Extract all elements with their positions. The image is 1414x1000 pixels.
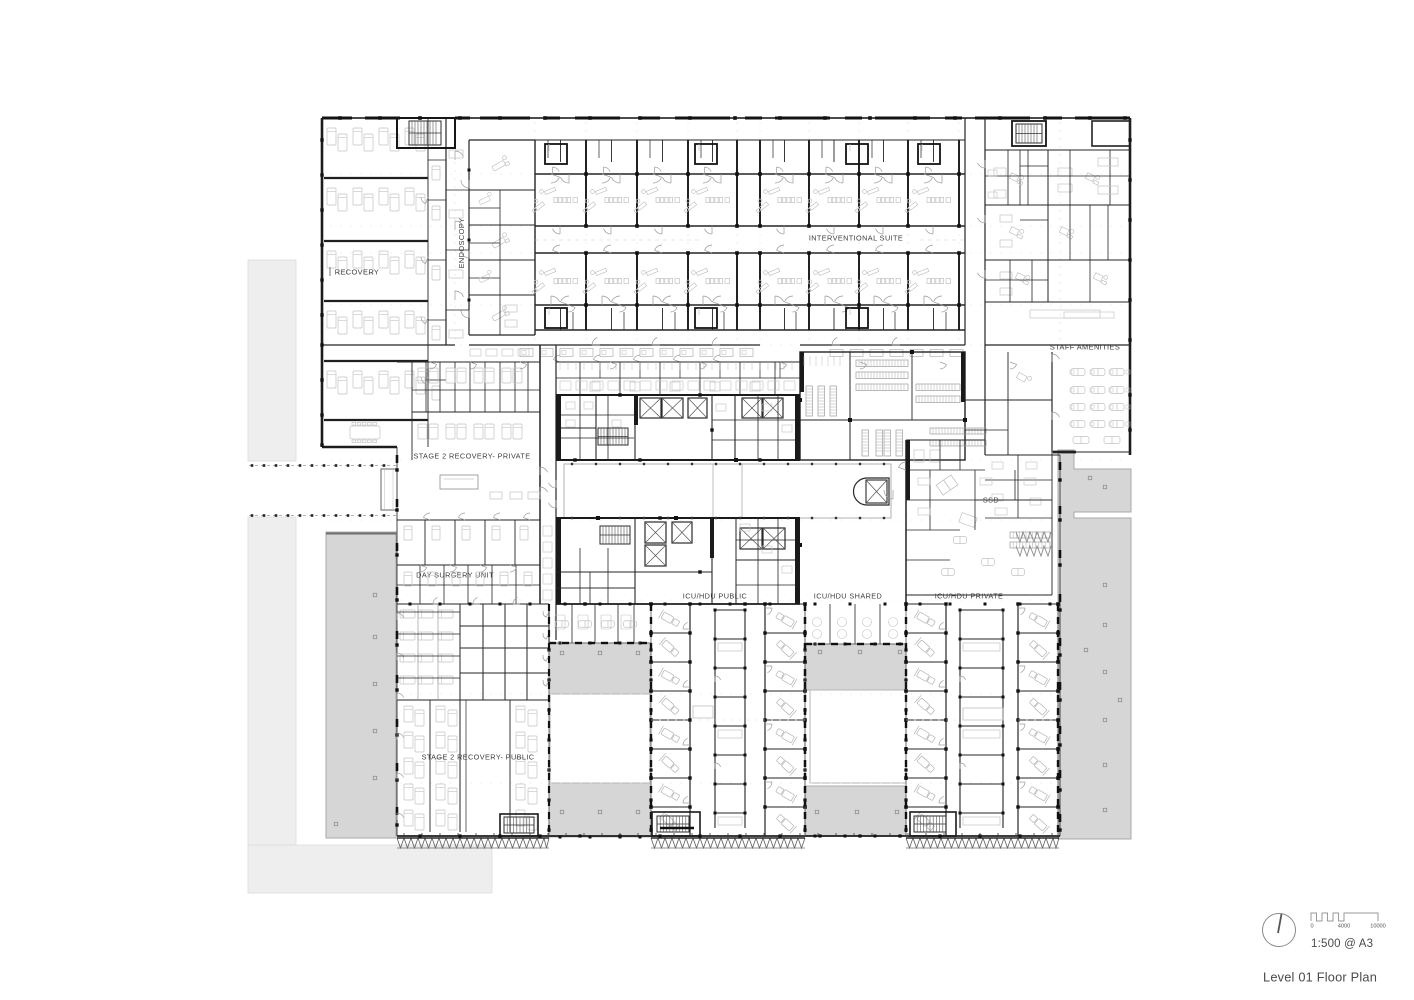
- svg-text:1:500 @ A3: 1:500 @ A3: [1311, 938, 1373, 950]
- svg-text:ICU/HDU PUBLIC: ICU/HDU PUBLIC: [683, 592, 747, 601]
- svg-text:ENDOSCOPY: ENDOSCOPY: [457, 218, 466, 269]
- svg-text:4000: 4000: [1338, 924, 1350, 930]
- svg-text:0: 0: [1310, 924, 1313, 930]
- svg-text:10000: 10000: [1370, 924, 1386, 930]
- svg-text:RECOVERY: RECOVERY: [335, 268, 380, 277]
- svg-text:Level 01 Floor Plan: Level 01 Floor Plan: [1263, 970, 1377, 985]
- svg-text:STAGE 2 RECOVERY- PUBLIC: STAGE 2 RECOVERY- PUBLIC: [422, 753, 535, 762]
- svg-text:STAFF AMENITIES: STAFF AMENITIES: [1050, 343, 1120, 352]
- svg-text:INTERVENTIONAL SUITE: INTERVENTIONAL SUITE: [809, 234, 903, 243]
- svg-text:ICU/HDU PRIVATE: ICU/HDU PRIVATE: [935, 592, 1004, 601]
- svg-text:STAGE 2 RECOVERY- PRIVATE: STAGE 2 RECOVERY- PRIVATE: [413, 452, 530, 461]
- svg-text:ICU/HDU SHARED: ICU/HDU SHARED: [814, 592, 882, 601]
